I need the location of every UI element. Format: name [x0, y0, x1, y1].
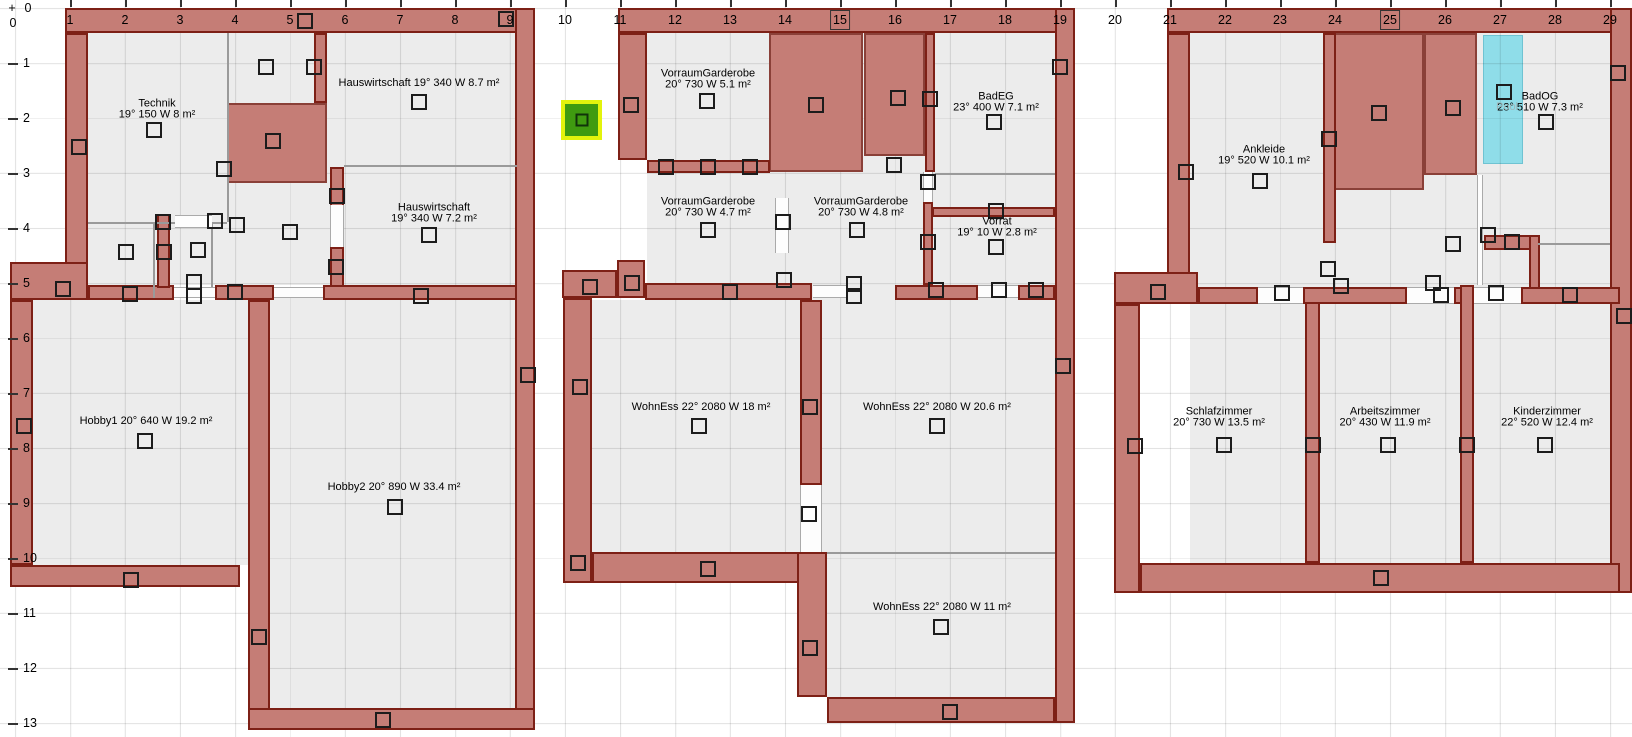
ruler-number[interactable]: 19 [1053, 13, 1067, 27]
ruler-tick [895, 0, 897, 7]
ruler-number[interactable]: 26 [1438, 13, 1452, 27]
ruler-tick [785, 0, 787, 7]
ruler-number[interactable]: 27 [1493, 13, 1507, 27]
ruler-number[interactable]: 6 [23, 331, 30, 345]
ruler-number[interactable]: 29 [1603, 13, 1617, 27]
ruler-number[interactable]: 17 [943, 13, 957, 27]
ruler-tick [8, 338, 18, 340]
ruler-zero-horizontal: 0 [25, 1, 32, 15]
ruler-tick [400, 0, 402, 7]
ruler-tick [345, 0, 347, 7]
ruler-number[interactable]: 22 [1218, 13, 1232, 27]
ruler-number[interactable]: 3 [23, 166, 30, 180]
ruler-tick [1500, 0, 1502, 7]
ruler-number[interactable]: 13 [23, 716, 37, 730]
floorplan-canvas: Technik19° 150 W 8 m²Hauswirtschaft 19° … [0, 0, 1632, 737]
ruler-number[interactable]: 10 [558, 13, 572, 27]
ruler-number[interactable]: 9 [507, 13, 514, 27]
ruler-number[interactable]: 11 [614, 13, 627, 27]
ruler-tick [8, 393, 18, 395]
ruler-tick [1115, 0, 1117, 7]
ruler-number[interactable]: 2 [122, 13, 129, 27]
ruler-number[interactable]: 1 [67, 13, 74, 27]
ruler-tick [8, 723, 18, 725]
ruler-tick [620, 0, 622, 7]
ruler-number[interactable]: 15 [833, 13, 847, 27]
ruler-number[interactable]: 1 [23, 56, 30, 70]
ruler-tick [8, 63, 18, 65]
ruler-tick [8, 173, 18, 175]
ruler-number[interactable]: 16 [888, 13, 902, 27]
ruler-tick [1445, 0, 1447, 7]
ruler-tick [455, 0, 457, 7]
ruler-tick [1390, 0, 1392, 7]
ruler-number[interactable]: 9 [23, 496, 30, 510]
ruler-tick [8, 613, 18, 615]
ruler-number[interactable]: 6 [342, 13, 349, 27]
ruler-number[interactable]: 8 [452, 13, 459, 27]
ruler-number[interactable]: 5 [287, 13, 294, 27]
ruler-number[interactable]: 8 [23, 441, 30, 455]
ruler-tick [950, 0, 952, 7]
ruler-number[interactable]: 4 [23, 221, 30, 235]
ruler-number[interactable]: 4 [232, 13, 239, 27]
ruler-tick [125, 0, 127, 7]
ruler-number[interactable]: 28 [1548, 13, 1562, 27]
ruler-tick [8, 668, 18, 670]
ruler-tick [840, 0, 842, 7]
ruler-number[interactable]: 20 [1108, 13, 1122, 27]
ruler-tick [8, 503, 18, 505]
ruler-tick [510, 0, 512, 7]
ruler-tick [565, 0, 567, 7]
ruler-corner-plus: + [8, 1, 15, 15]
ruler-layer: 1234567891011121314151617181920212223242… [0, 0, 1632, 737]
ruler-tick [1225, 0, 1227, 7]
ruler-number[interactable]: 2 [23, 111, 30, 125]
ruler-tick [70, 0, 72, 7]
ruler-number[interactable]: 10 [23, 551, 37, 565]
ruler-number[interactable]: 3 [177, 13, 184, 27]
ruler-number[interactable]: 11 [23, 606, 36, 620]
ruler-tick [8, 228, 18, 230]
ruler-tick [1555, 0, 1557, 7]
ruler-tick [1610, 0, 1612, 7]
ruler-tick [1005, 0, 1007, 7]
ruler-tick [1335, 0, 1337, 7]
ruler-number[interactable]: 23 [1273, 13, 1287, 27]
ruler-number[interactable]: 18 [998, 13, 1012, 27]
ruler-number[interactable]: 12 [23, 661, 37, 675]
ruler-tick [8, 283, 18, 285]
ruler-tick [1170, 0, 1172, 7]
ruler-tick [8, 448, 18, 450]
ruler-tick [1280, 0, 1282, 7]
ruler-tick [730, 0, 732, 7]
ruler-number[interactable]: 7 [397, 13, 404, 27]
ruler-tick [235, 0, 237, 7]
ruler-zero-vertical: 0 [10, 16, 17, 30]
ruler-number[interactable]: 21 [1163, 13, 1177, 27]
ruler-number[interactable]: 7 [23, 386, 30, 400]
ruler-tick [8, 118, 18, 120]
ruler-tick [1060, 0, 1062, 7]
ruler-number[interactable]: 25 [1383, 13, 1397, 27]
ruler-number[interactable]: 13 [723, 13, 737, 27]
ruler-tick [675, 0, 677, 7]
ruler-number[interactable]: 5 [23, 276, 30, 290]
ruler-number[interactable]: 24 [1328, 13, 1342, 27]
ruler-number[interactable]: 14 [778, 13, 792, 27]
ruler-number[interactable]: 12 [668, 13, 682, 27]
ruler-tick [180, 0, 182, 7]
ruler-tick [8, 558, 18, 560]
ruler-tick [290, 0, 292, 7]
